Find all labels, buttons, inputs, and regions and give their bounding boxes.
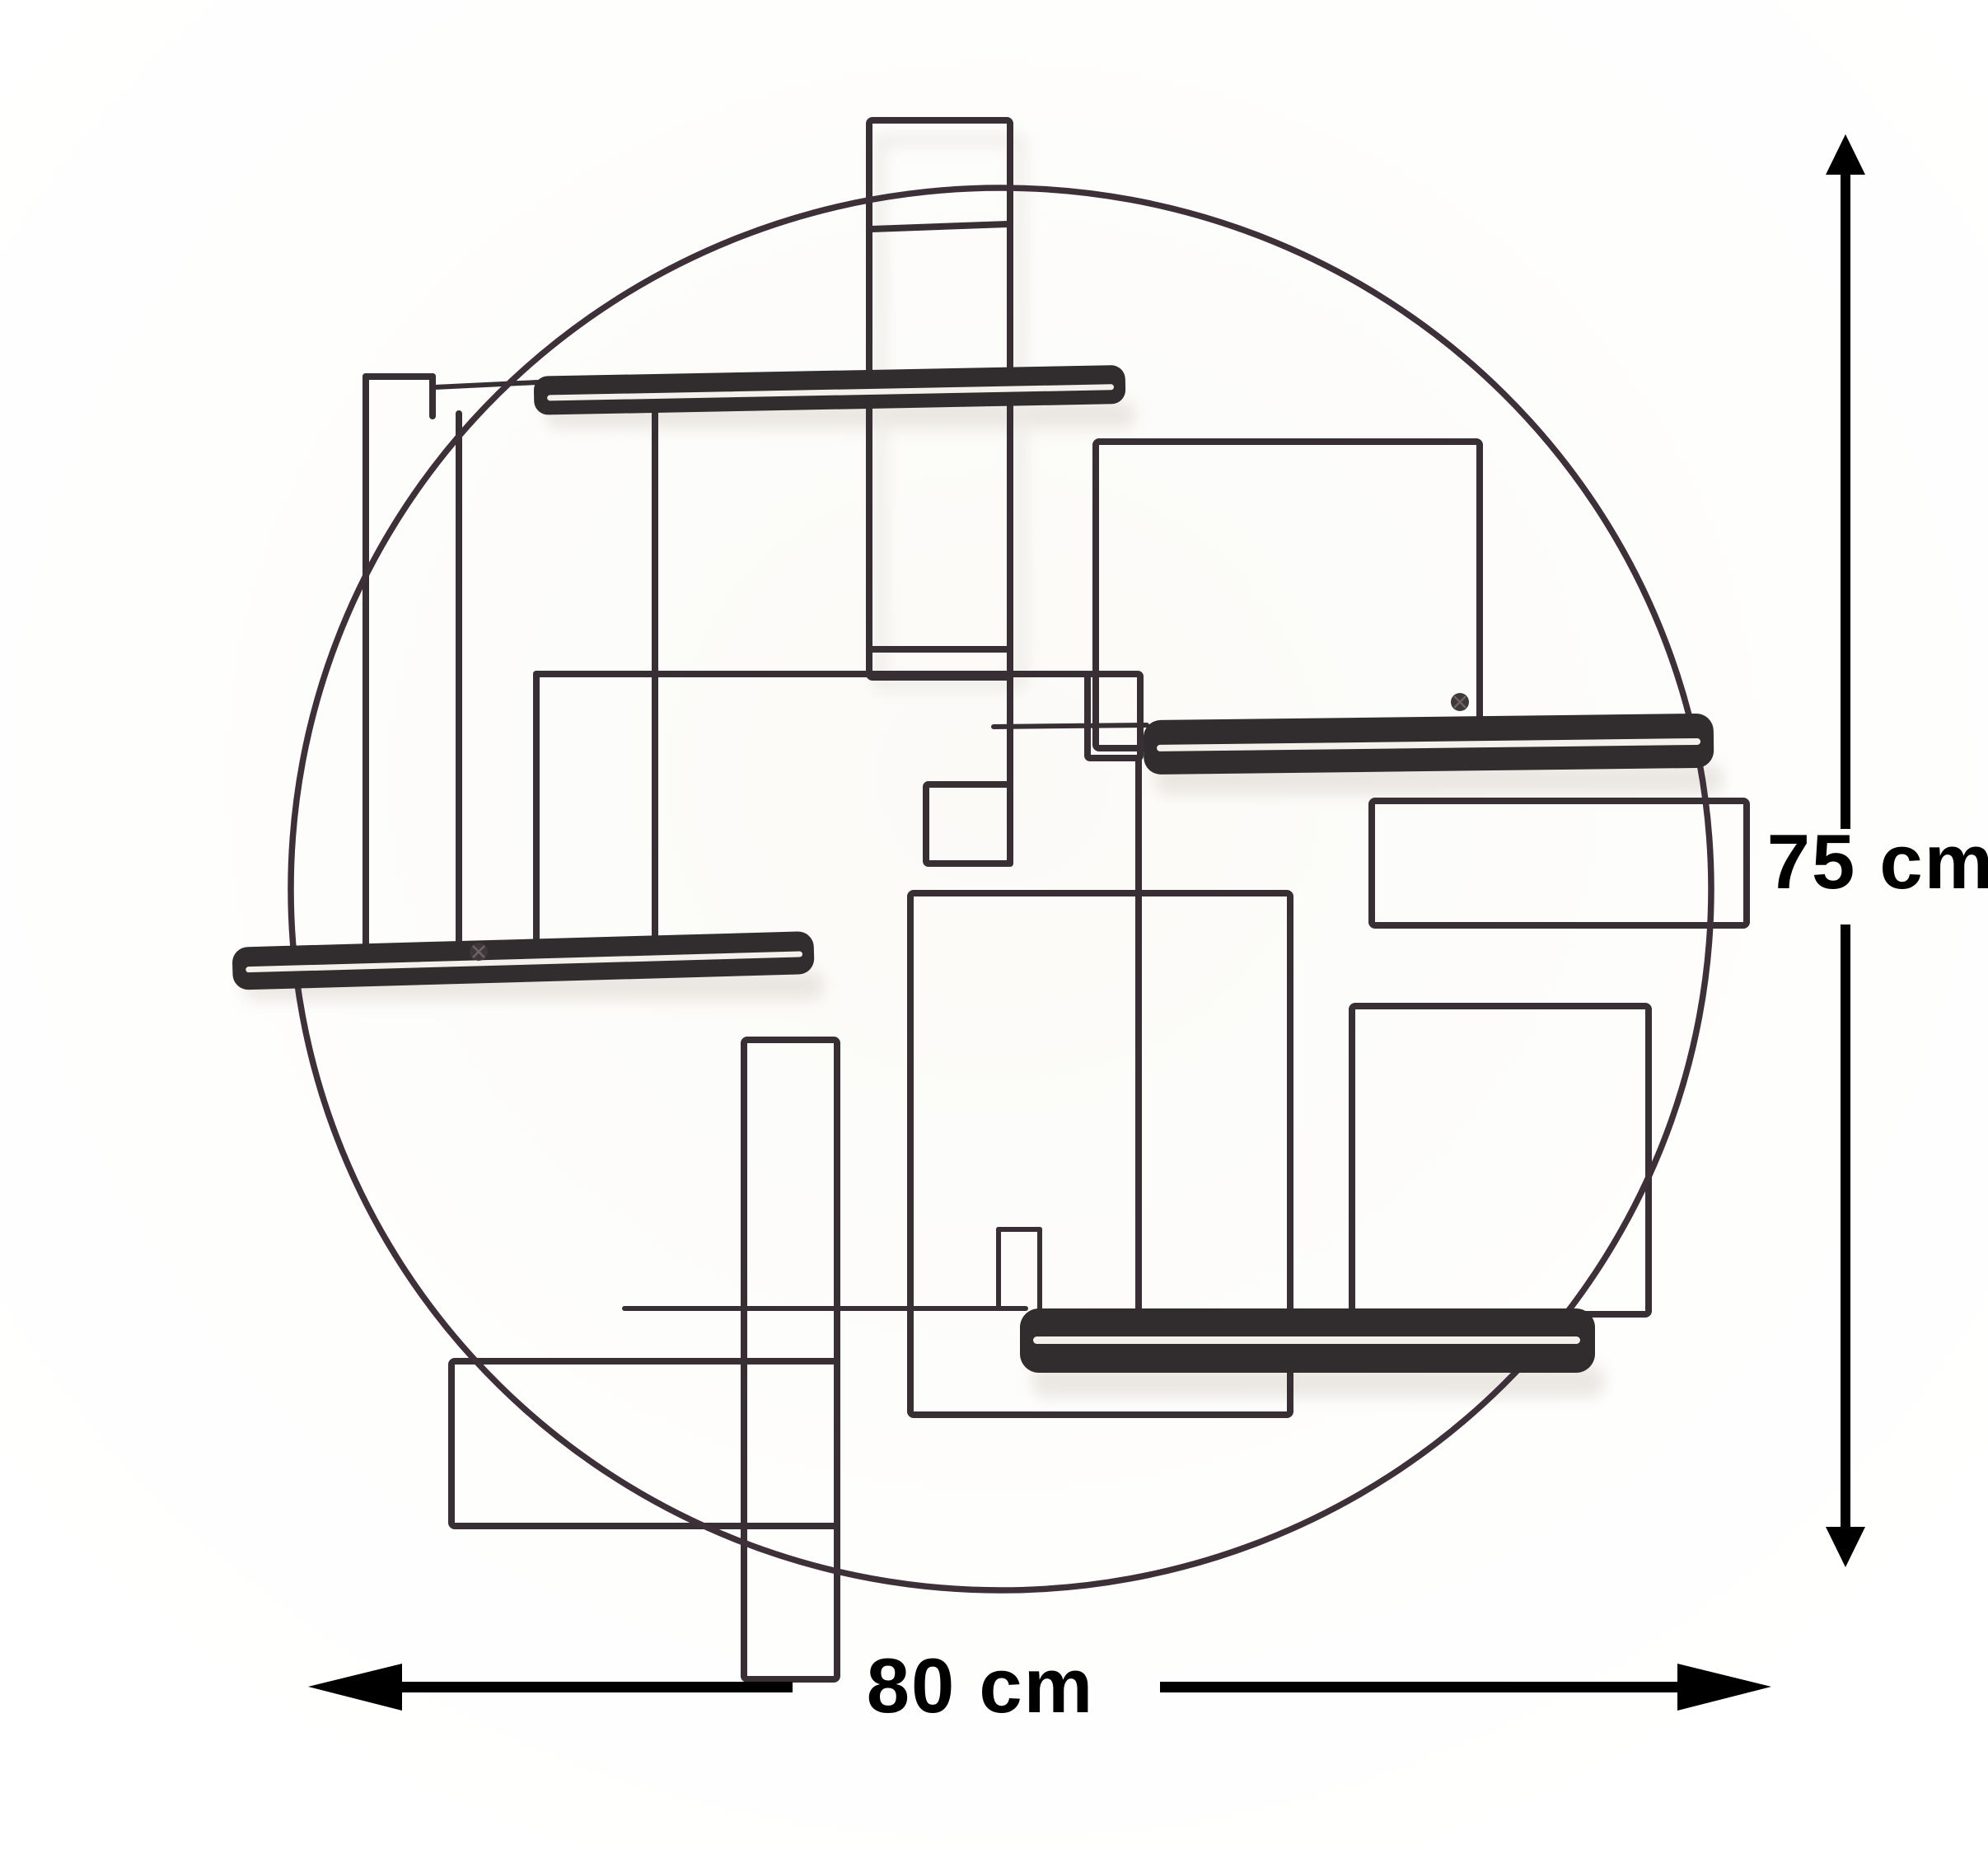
screw-icon [470, 943, 488, 961]
height-label: 75 cm [1767, 818, 1988, 905]
product-photo: 75 cm 80 cm [0, 0, 1988, 1849]
wall-shelf-diagram: 75 cm 80 cm [0, 0, 1988, 1849]
shelf-bottom [1020, 1308, 1595, 1373]
shelf-right [1144, 714, 1714, 775]
width-label: 80 cm [867, 1642, 1095, 1729]
screw-icon [1451, 693, 1469, 711]
